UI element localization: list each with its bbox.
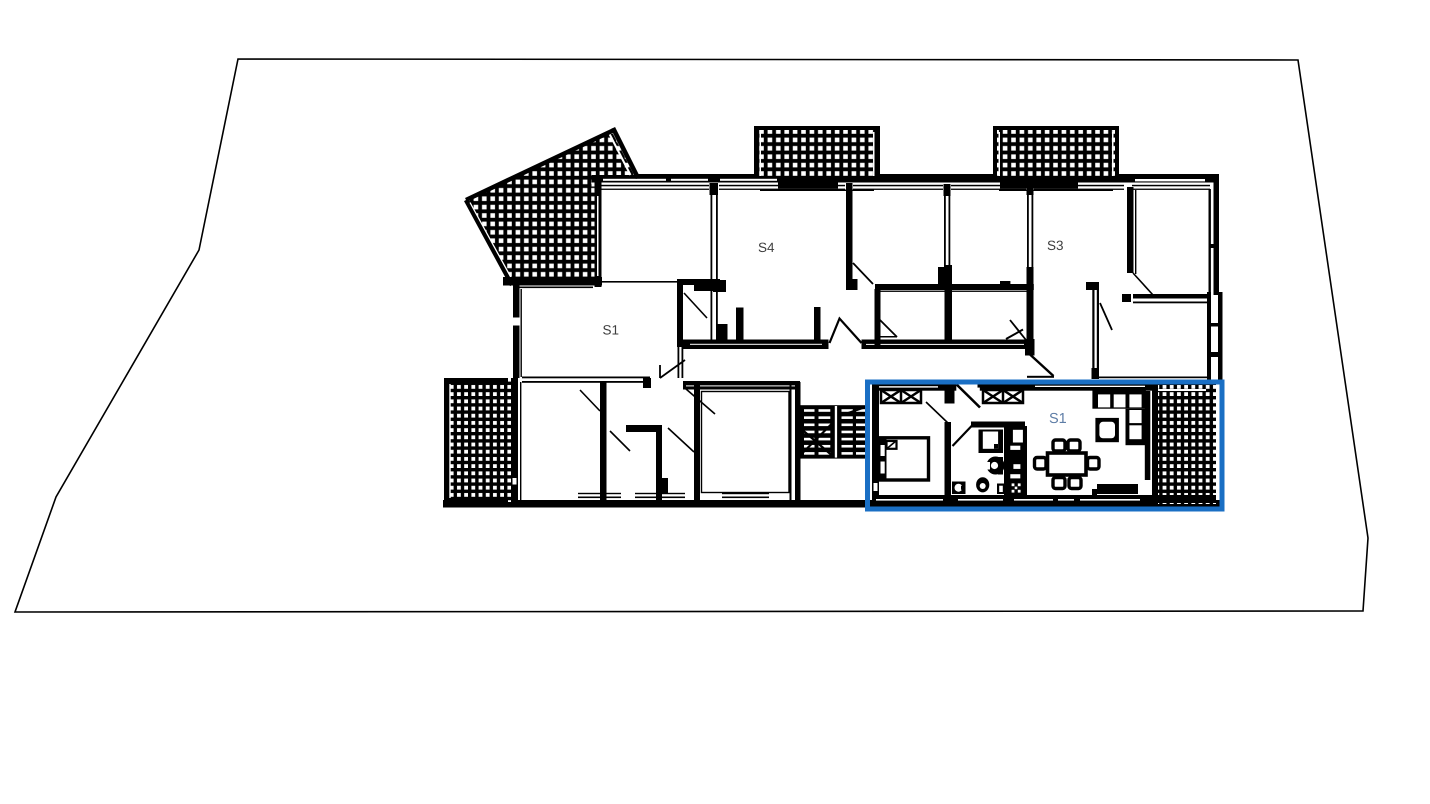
svg-text:S1: S1 <box>603 323 620 338</box>
svg-text:S4: S4 <box>758 240 775 255</box>
svg-text:S1: S1 <box>1049 411 1067 427</box>
svg-text:S3: S3 <box>1047 238 1064 253</box>
